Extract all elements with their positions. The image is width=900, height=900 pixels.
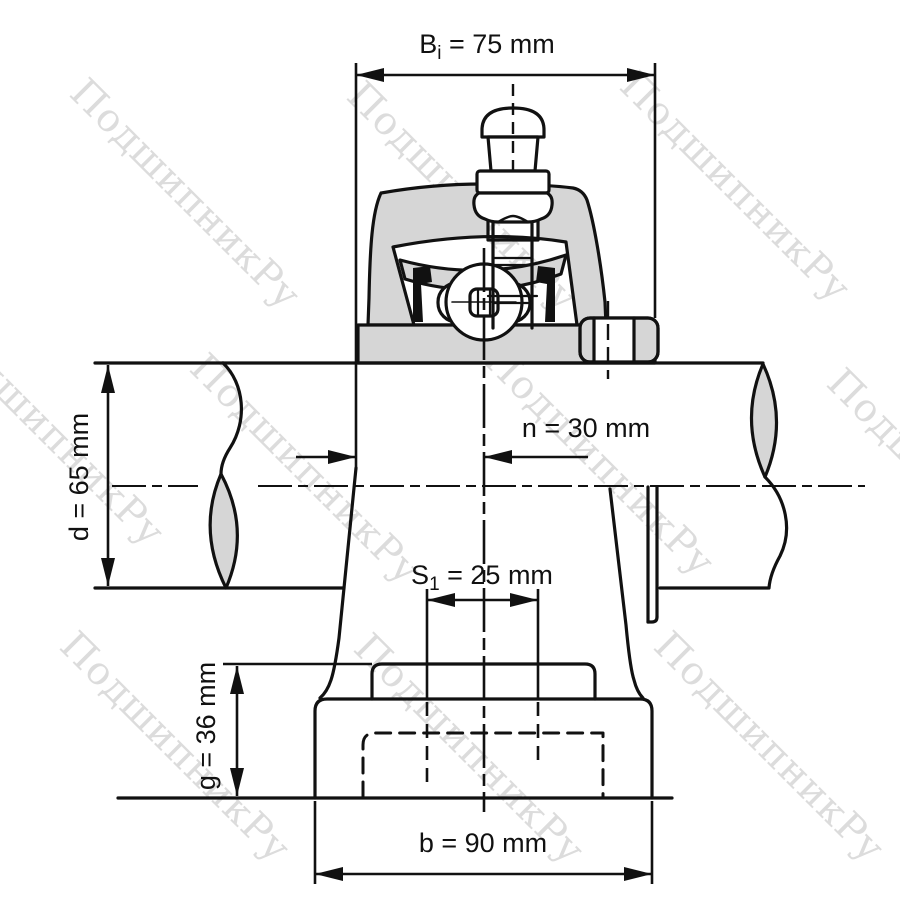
watermark-text: ПодшипникРу bbox=[818, 360, 900, 608]
dimension-label-g: g = 36 mm bbox=[191, 662, 221, 790]
arrowhead bbox=[230, 666, 244, 694]
arrowhead bbox=[427, 593, 455, 607]
watermark-text: ПодшипникРу bbox=[475, 337, 723, 585]
arrowhead bbox=[101, 365, 115, 393]
grease-fitting-base bbox=[474, 193, 552, 222]
dimension-label-b: b = 90 mm bbox=[419, 828, 547, 858]
dimension-b: b = 90 mm bbox=[315, 801, 652, 884]
dimension-d: d = 65 mm bbox=[64, 365, 115, 586]
locking-collar bbox=[580, 318, 658, 362]
dimension-label-s1: S1 = 25 mm bbox=[411, 560, 553, 595]
arrowhead bbox=[101, 558, 115, 586]
screenshot-root: ПодшипникРу ПодшипникРу ПодшипникРу Подш… bbox=[0, 0, 900, 900]
dimension-label-bi: Bi = 75 mm bbox=[419, 29, 555, 64]
dimension-g: g = 36 mm bbox=[191, 662, 372, 796]
bearing-dimension-drawing: ПодшипникРу ПодшипникРу ПодшипникРу Подш… bbox=[0, 0, 900, 900]
arrowhead bbox=[624, 867, 652, 881]
watermark-text: ПодшипникРу bbox=[645, 623, 893, 871]
shaft-break-right bbox=[751, 364, 786, 588]
arrowhead bbox=[328, 450, 356, 464]
arrowhead bbox=[510, 593, 538, 607]
dimension-label-n: n = 30 mm bbox=[522, 413, 650, 443]
watermark-text: ПодшипникРу bbox=[51, 623, 299, 871]
dimension-label-d: d = 65 mm bbox=[64, 413, 94, 541]
arrowhead bbox=[315, 867, 343, 881]
watermark-text: ПодшипникРу bbox=[611, 63, 859, 311]
arrowhead bbox=[484, 450, 512, 464]
grease-fitting-hex bbox=[477, 171, 549, 193]
watermark-text: ПодшипникРу bbox=[61, 70, 309, 318]
